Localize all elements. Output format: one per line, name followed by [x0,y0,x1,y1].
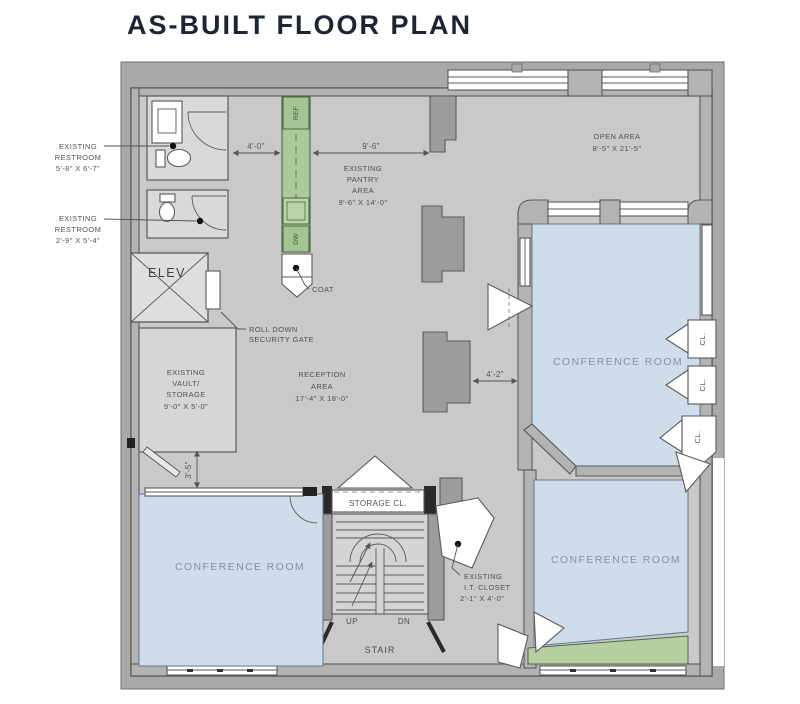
toilet-bowl [160,203,175,222]
toilet-tank [156,150,165,167]
svg-text:EXISTING: EXISTING [59,142,97,151]
toilet-tank [160,194,175,202]
svg-text:ROLL DOWN: ROLL DOWN [249,325,298,334]
glass-corner-left [518,200,548,224]
door-jamb [127,438,135,448]
svg-text:STORAGE CL.: STORAGE CL. [349,499,407,508]
svg-text:3'-5": 3'-5" [184,461,193,478]
pier-column-mid [422,206,464,282]
svg-text:CONFERENCE ROOM: CONFERENCE ROOM [175,561,305,573]
svg-text:EXISTING: EXISTING [344,164,382,173]
pantry-cabinets: REF DW [282,96,310,252]
north-column [568,70,602,96]
elevator: ELEV [131,253,208,322]
door-frame [303,487,317,496]
svg-text:RESTROOM: RESTROOM [55,153,102,162]
margin-white-cutout [713,458,724,666]
svg-text:STAIR: STAIR [365,645,396,655]
svg-text:CONFERENCE ROOM: CONFERENCE ROOM [553,356,683,368]
svg-text:RESTROOM: RESTROOM [55,225,102,234]
svg-text:4'-0": 4'-0" [247,142,264,151]
west-wall [131,88,139,676]
svg-text:ELEV: ELEV [148,266,186,280]
restroom-1 [147,96,228,180]
svg-text:OPEN AREA: OPEN AREA [594,132,641,141]
svg-text:REF: REF [293,106,300,120]
svg-text:9'-6" X 14'-0": 9'-6" X 14'-0" [339,198,388,207]
glass-corner-right [688,200,712,224]
glass-mullion-column [600,200,620,224]
svg-text:9'-0" X 5'-0": 9'-0" X 5'-0" [164,402,208,411]
svg-text:2'-9" X 5'-4": 2'-9" X 5'-4" [56,236,100,245]
svg-text:8'-5" X 21'-5": 8'-5" X 21'-5" [593,144,642,153]
svg-text:I.T. CLOSET: I.T. CLOSET [464,583,511,592]
svg-text:RECEPTION: RECEPTION [298,370,345,379]
svg-text:CONFERENCE ROOM: CONFERENCE ROOM [551,554,681,566]
svg-text:PANTRY: PANTRY [347,175,379,184]
svg-text:CL.: CL. [693,431,702,444]
svg-text:4'-2": 4'-2" [486,370,503,379]
svg-text:AREA: AREA [311,382,333,391]
svg-text:CL.: CL. [698,333,707,346]
svg-text:DN: DN [398,617,410,626]
northeast-corner-column [688,70,712,96]
svg-text:EXISTING: EXISTING [167,368,205,377]
svg-text:2'-1" X 4'-0": 2'-1" X 4'-0" [460,594,504,603]
svg-text:EXISTING: EXISTING [59,214,97,223]
svg-text:5'-8" X 6'-7": 5'-8" X 6'-7" [56,164,100,173]
restroom-2 [147,190,228,238]
svg-text:SECURITY GATE: SECURITY GATE [249,335,314,344]
svg-text:EXISTING: EXISTING [464,572,502,581]
svg-text:UP: UP [346,617,358,626]
svg-text:AREA: AREA [352,186,374,195]
sink [152,101,182,143]
svg-text:VAULT/: VAULT/ [172,379,200,388]
svg-text:DW: DW [293,233,300,245]
toilet-bowl [168,150,191,167]
svg-text:COAT: COAT [312,285,334,294]
floor-plan-page: AS-BUILT FLOOR PLAN [0,0,800,704]
svg-text:17'-4" X 18'-0": 17'-4" X 18'-0" [295,394,348,403]
svg-text:CL.: CL. [698,379,707,392]
conference-room-bottom-left: CONFERENCE ROOM [139,487,323,666]
east-window [702,225,712,315]
floor-plan-drawing: EXISTING RESTROOM 5'-8" X 6'-7" EXISTING… [0,0,800,704]
pier-column-low [423,332,470,412]
svg-text:9'-6": 9'-6" [362,142,379,151]
svg-text:STORAGE: STORAGE [166,390,205,399]
